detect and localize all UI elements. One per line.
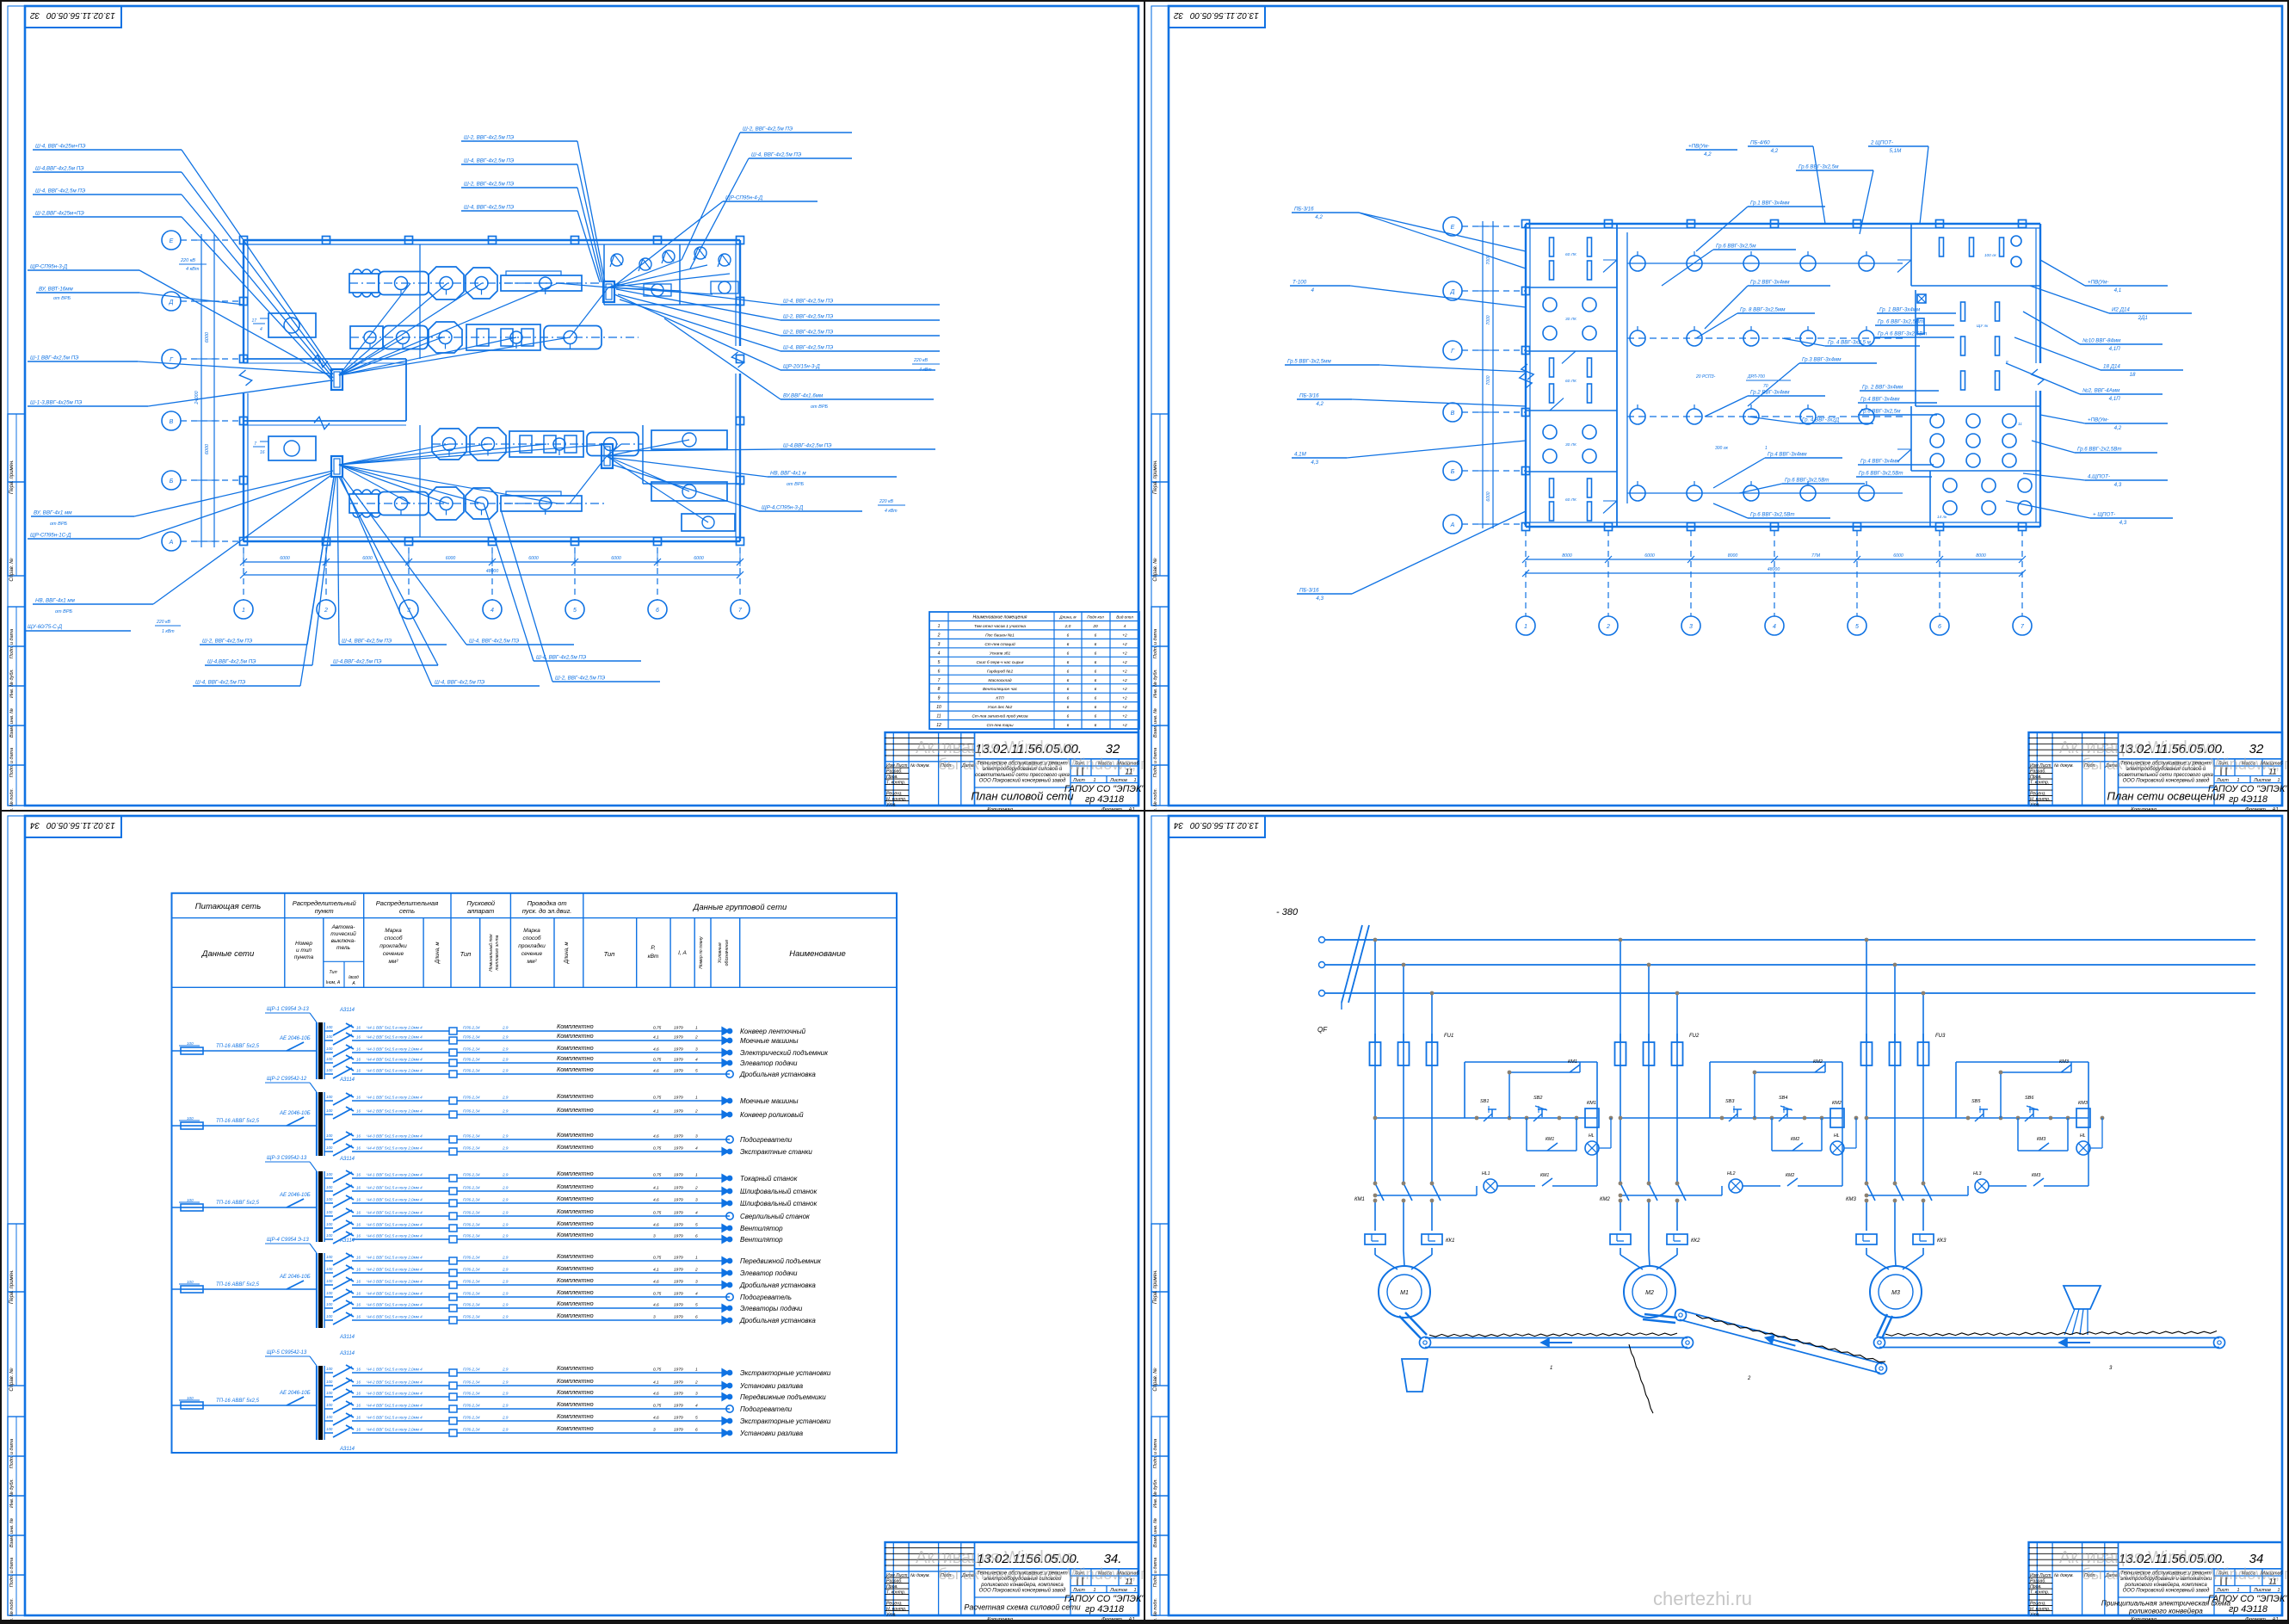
svg-text:+2: +2 <box>1122 696 1127 701</box>
svg-text:Комплектно: Комплектно <box>557 1252 594 1260</box>
svg-text:Подп. и дата: Подп. и дата <box>1153 629 1158 658</box>
svg-text:Подогреватели: Подогреватели <box>740 1136 793 1144</box>
svg-text:Гр. 6 ВВГ-3х2,5Вт: Гр. 6 ВВГ-3х2,5Вт <box>1878 319 1923 325</box>
svg-text:Подп. и дата: Подп. и дата <box>9 1558 15 1587</box>
svg-text:Тип: Тип <box>460 950 472 958</box>
svg-text:ЩУ лк: ЩУ лк <box>1977 324 1989 328</box>
svg-text:100: 100 <box>187 1396 194 1400</box>
svg-text:Подп кол: Подп кол <box>1087 615 1104 620</box>
svg-text:6: 6 <box>1938 624 1941 630</box>
svg-text:100: 100 <box>326 1185 333 1189</box>
svg-text:100: 100 <box>326 1095 333 1099</box>
svg-text:6: 6 <box>1067 660 1070 665</box>
svg-text:Дробильная установка: Дробильная установка <box>739 1281 816 1289</box>
svg-text:0,75: 0,75 <box>653 1146 662 1152</box>
svg-text:Ш-4,ВВГ-4х2,5м ПЭ: Ш-4,ВВГ-4х2,5м ПЭ <box>333 659 382 665</box>
svg-text:Номинальный ток: Номинальный ток <box>488 934 494 972</box>
svg-text:4: 4 <box>1311 287 1315 293</box>
svg-text:Н. контр.: Н. контр. <box>2030 1607 2050 1612</box>
svg-text:3: 3 <box>695 1280 698 1285</box>
svg-text:План силовой сети: План силовой сети <box>971 790 1073 803</box>
svg-text:+ПВ(Ум-: +ПВ(Ум- <box>2088 280 2108 286</box>
svg-text:Подогреватели: Подогреватели <box>740 1405 793 1413</box>
svg-text:ПЛ6-2,34: ПЛ6-2,34 <box>463 1198 480 1202</box>
svg-text:1: 1 <box>695 1256 698 1261</box>
svg-text:Гр.6 ВВГ-3х2,5м: Гр.6 ВВГ-3х2,5м <box>1798 164 1839 170</box>
svg-text:ЩР-1 С9954 Э-13: ЩР-1 С9954 Э-13 <box>267 1007 309 1012</box>
svg-text:Д: Д <box>1450 289 1455 295</box>
svg-text:Гр.2 ВВГ-3х4мм: Гр.2 ВВГ-3х4мм <box>1750 390 1790 396</box>
svg-text:220 кВ: 220 кВ <box>156 620 171 625</box>
svg-text:4,3: 4,3 <box>1311 460 1318 466</box>
svg-text:Взам. инв. №: Взам. инв. № <box>9 708 15 738</box>
svg-text:60 ЛК: 60 ЛК <box>1565 497 1577 503</box>
svg-text:ПЛ6-2,34: ПЛ6-2,34 <box>463 1173 480 1177</box>
svg-text:5: 5 <box>695 1303 698 1308</box>
svg-text:100 лк: 100 лк <box>1984 253 1997 257</box>
svg-text:Д: Д <box>169 299 174 306</box>
svg-text:1979: 1979 <box>674 1211 683 1216</box>
svg-text:220 кВ: 220 кВ <box>180 258 195 263</box>
svg-text:100: 100 <box>187 1041 194 1046</box>
svg-text:2,9: 2,9 <box>502 1368 509 1372</box>
svg-text:Пос башен №1: Пос башен №1 <box>985 633 1015 639</box>
svg-text:2: 2 <box>694 1035 698 1040</box>
svg-text:48000: 48000 <box>486 569 499 574</box>
svg-text:16: 16 <box>356 1211 361 1215</box>
svg-text:Справ. №: Справ. № <box>1152 558 1158 582</box>
svg-text:Дробильная установка: Дробильная установка <box>739 1317 816 1325</box>
svg-text:4,ЩПОТ-: 4,ЩПОТ- <box>2088 474 2110 480</box>
svg-text:бы активировать Windows, перей: бы активировать Windows, перейд <box>938 755 1144 773</box>
svg-text:2: 2 <box>1606 624 1610 630</box>
svg-text:16: 16 <box>356 1416 361 1420</box>
svg-text:Тип: Тип <box>604 950 615 958</box>
svg-text:100: 100 <box>326 1367 333 1371</box>
svg-text:АЕ 2046-10Б: АЕ 2046-10Б <box>279 1391 311 1396</box>
svg-text:100: 100 <box>326 1314 333 1318</box>
svg-text:4: 4 <box>490 608 494 614</box>
svg-text:Ч4-1 ВВГ 5х2,5 в полу 2,0мм: Ч4-1 ВВГ 5х2,5 в полу 2,0мм 4 <box>367 1173 423 1177</box>
svg-text:выключа-: выключа- <box>331 938 356 944</box>
svg-text:5: 5 <box>1855 624 1859 630</box>
svg-text:100: 100 <box>326 1222 333 1226</box>
svg-text:6: 6 <box>1095 705 1097 710</box>
svg-text:Ш-2, ВВГ-4х2,5м ПЭ: Ш-2, ВВГ-4х2,5м ПЭ <box>464 182 515 188</box>
svg-text:Взам. инв. №: Взам. инв. № <box>9 1518 15 1547</box>
svg-text:ЩУ-60/75-С-Д: ЩУ-60/75-С-Д <box>28 624 63 630</box>
svg-text:20 РСПЗ-: 20 РСПЗ- <box>1695 374 1716 380</box>
svg-text:0,75: 0,75 <box>653 1404 662 1409</box>
svg-text:КМ2: КМ2 <box>1832 1101 1842 1106</box>
svg-text:1979: 1979 <box>674 1035 683 1040</box>
svg-text:Ч4-2 ВВГ 5х2,5 в полу 2,0мм: Ч4-2 ВВГ 5х2,5 в полу 2,0мм 4 <box>367 1268 423 1272</box>
svg-text:Инв. № подл.: Инв. № подл. <box>1153 1598 1158 1620</box>
svg-text:Инв. № дубл.: Инв. № дубл. <box>1153 669 1158 698</box>
svg-text:Питающая сеть: Питающая сеть <box>195 902 261 911</box>
svg-text:4,2: 4,2 <box>2114 425 2122 431</box>
svg-text:100: 100 <box>187 1280 194 1284</box>
svg-text:Т. контр.: Т. контр. <box>886 1590 905 1596</box>
svg-text:60 ЛК: 60 ЛК <box>1565 379 1577 384</box>
svg-text:2,9: 2,9 <box>502 1211 509 1215</box>
svg-text:ГАПОУ СО "ЭПЭК": ГАПОУ СО "ЭПЭК" <box>1064 784 1144 794</box>
svg-text:ПБ-4/60: ПБ-4/60 <box>1750 140 1770 146</box>
svg-text:А: А <box>1450 522 1455 528</box>
svg-text:6: 6 <box>1067 705 1070 710</box>
svg-text:Ч4-6 ВВГ 5х2,5 в полу 2,0мм: Ч4-6 ВВГ 5х2,5 в полу 2,0мм 4 <box>367 1234 423 1238</box>
svg-text:Ш-4, ВВГ-4х2,5м ПЭ: Ш-4, ВВГ-4х2,5м ПЭ <box>464 205 515 211</box>
svg-text:Формат: Формат <box>2245 1618 2266 1621</box>
svg-text:Длина, м: Длина, м <box>435 942 441 964</box>
svg-text:гр 4Э118: гр 4Э118 <box>1085 1604 1124 1615</box>
svg-text:8000: 8000 <box>1976 553 1986 559</box>
svg-text:Номер: Номер <box>295 941 312 947</box>
svg-text:от ВРБ: от ВРБ <box>50 522 68 527</box>
svg-text:Ч4-4 ВВГ 5х2,5 в полу 2,0мм: Ч4-4 ВВГ 5х2,5 в полу 2,0мм 4 <box>367 1146 423 1151</box>
svg-text:ТП-16 АВВГ 5х2,5: ТП-16 АВВГ 5х2,5 <box>216 1201 260 1206</box>
svg-text:8: 8 <box>938 687 941 692</box>
svg-text:+2: +2 <box>1122 633 1127 639</box>
svg-text:Н. контр.: Н. контр. <box>2030 797 2050 802</box>
svg-text:Маслосклад: Маслосклад <box>988 678 1012 683</box>
svg-text:АЗ114: АЗ114 <box>339 1008 355 1013</box>
svg-text:Ш-4,ВВГ-4х2,5м ПЭ: Ш-4,ВВГ-4х2,5м ПЭ <box>783 443 832 449</box>
svg-text:ПЛ6-2,34: ПЛ6-2,34 <box>463 1223 480 1227</box>
svg-text:4 кВт: 4 кВт <box>186 267 200 272</box>
svg-text:Гр.3 ВВГ-3х4мм: Гр.3 ВВГ-3х4мм <box>1802 357 1842 363</box>
svg-text:100: 100 <box>326 1255 333 1259</box>
svg-text:КМ3: КМ3 <box>1846 1197 1857 1202</box>
svg-text:SB1: SB1 <box>1480 1099 1489 1104</box>
svg-text:1979: 1979 <box>674 1173 683 1178</box>
svg-text:16: 16 <box>356 1303 361 1307</box>
svg-text:11: 11 <box>936 714 941 719</box>
svg-text:Гр.5 ВВГ-3х2,5мм: Гр.5 ВВГ-3х2,5мм <box>1287 359 1331 365</box>
svg-text:6000: 6000 <box>1486 491 1491 501</box>
svg-text:1979: 1979 <box>674 1428 683 1433</box>
svg-text:Ч4-3 ВВГ 5х2,5 в полу 2,0мм: Ч4-3 ВВГ 5х2,5 в полу 2,0мм 4 <box>367 1392 423 1396</box>
svg-text:А: А <box>169 540 174 546</box>
svg-text:Ч4-5 ВВГ 5х2,5 в полу 2,0мм: Ч4-5 ВВГ 5х2,5 в полу 2,0мм 4 <box>367 1069 423 1073</box>
svg-text:5: 5 <box>695 1416 698 1421</box>
svg-text:ЩР-5 С99542-13: ЩР-5 С99542-13 <box>267 1350 307 1355</box>
svg-text:HL3: HL3 <box>1973 1171 1982 1176</box>
svg-text:ПЛ6-2,34: ПЛ6-2,34 <box>463 1211 480 1215</box>
svg-text:0,75: 0,75 <box>653 1211 662 1216</box>
svg-text:Экстрактные станки: Экстрактные станки <box>740 1148 812 1156</box>
svg-text:Ч4-4 ВВГ 5х2,5 в полу 2,0мм: Ч4-4 ВВГ 5х2,5 в полу 2,0мм 4 <box>367 1404 423 1408</box>
svg-text:7000: 7000 <box>1486 315 1491 324</box>
svg-text:5: 5 <box>695 1069 698 1074</box>
svg-text:Комплектно: Комплектно <box>557 1400 594 1408</box>
svg-text:1979: 1979 <box>674 1026 683 1031</box>
svg-text:1979: 1979 <box>674 1315 683 1320</box>
svg-text:Ч4-4 ВВГ 5х2,5 в полу 2,0мм: Ч4-4 ВВГ 5х2,5 в полу 2,0мм 4 <box>367 1058 423 1062</box>
svg-text:Ч4-2 ВВГ 5х2,5 в полу 2,0мм: Ч4-2 ВВГ 5х2,5 в полу 2,0мм 4 <box>367 1035 423 1040</box>
svg-text:2,9: 2,9 <box>502 1292 509 1296</box>
svg-text:М1: М1 <box>1400 1290 1409 1296</box>
svg-text:34: 34 <box>30 820 40 830</box>
svg-text:№ докум.: № докум. <box>2054 1573 2074 1578</box>
svg-text:способ: способ <box>385 935 403 942</box>
svg-text:+ПВ(Ум-: +ПВ(Ум- <box>2088 417 2108 423</box>
svg-text:ПЛ6-2,34: ПЛ6-2,34 <box>463 1134 480 1139</box>
svg-text:6: 6 <box>1095 651 1097 656</box>
svg-text:АЕ 2046-10Б: АЕ 2046-10Б <box>279 1275 311 1280</box>
svg-text:3: 3 <box>695 1134 698 1139</box>
svg-text:1979: 1979 <box>674 1268 683 1273</box>
svg-text:Данные сети: Данные сети <box>201 949 255 959</box>
svg-text:6: 6 <box>695 1315 698 1320</box>
svg-text:№ докум.: № докум. <box>910 763 930 769</box>
svg-text:100: 100 <box>326 1145 333 1150</box>
svg-text:Ш-4, ВВГ-4х2,5м ПЭ: Ш-4, ВВГ-4х2,5м ПЭ <box>435 680 485 686</box>
svg-text:Т. контр.: Т. контр. <box>2030 781 2049 786</box>
svg-text:13.02.11.56.05.00: 13.02.11.56.05.00 <box>46 10 115 20</box>
svg-text:Ш-2, ВВГ-4х2,5м ПЭ: Ш-2, ВВГ-4х2,5м ПЭ <box>743 127 793 133</box>
svg-text:мм²: мм² <box>388 959 398 965</box>
svg-text:Комплектно: Комплектно <box>557 1412 594 1420</box>
svg-text:ГАПОУ СО "ЭПЭК": ГАПОУ СО "ЭПЭК" <box>2208 1594 2287 1604</box>
svg-text:Н. контр.: Н. контр. <box>886 797 906 802</box>
svg-text:Ч4-2 ВВГ 5х2,5 в полу 2,0мм: Ч4-2 ВВГ 5х2,5 в полу 2,0мм 4 <box>367 1109 423 1114</box>
svg-text:Конвеер ленточный: Конвеер ленточный <box>740 1028 806 1035</box>
svg-text:FU3: FU3 <box>1935 1034 1946 1039</box>
svg-text:ПЛ6-2,34: ПЛ6-2,34 <box>463 1058 480 1062</box>
svg-text:ПЛ6-2,34: ПЛ6-2,34 <box>463 1303 480 1307</box>
svg-text:Подогреватель: Подогреватель <box>740 1294 792 1301</box>
svg-text:Перв. примен.: Перв. примен. <box>9 1269 15 1304</box>
svg-text:Моечные машины: Моечные машины <box>740 1037 799 1045</box>
svg-text:6: 6 <box>1067 723 1070 728</box>
svg-text:34: 34 <box>1174 820 1184 830</box>
svg-text:Комплектно: Комплектно <box>557 1288 594 1296</box>
svg-text:сеть: сеть <box>399 907 415 915</box>
svg-text:4,6: 4,6 <box>653 1280 659 1285</box>
svg-text:3: 3 <box>2109 1366 2113 1371</box>
svg-text:6: 6 <box>1095 678 1097 683</box>
svg-text:1: 1 <box>695 1368 698 1373</box>
svg-text:4: 4 <box>1773 624 1776 630</box>
svg-text:ПЛ6-2,34: ПЛ6-2,34 <box>463 1315 480 1319</box>
svg-text:16: 16 <box>356 1315 361 1319</box>
svg-text:Скип б перв-ч нас сырья: Скип б перв-ч нас сырья <box>976 660 1023 665</box>
svg-text:6: 6 <box>1067 714 1070 719</box>
svg-text:ГАПОУ СО "ЭПЭК": ГАПОУ СО "ЭПЭК" <box>1064 1594 1144 1604</box>
svg-text:Длина, м: Длина, м <box>565 942 570 964</box>
svg-text:I, А: I, А <box>678 950 687 956</box>
svg-text:Инв. № подл.: Инв. № подл. <box>9 1598 15 1620</box>
svg-text:11: 11 <box>2018 422 2022 427</box>
svg-text:Изм Лист: Изм Лист <box>886 763 908 769</box>
svg-text:1979: 1979 <box>674 1234 683 1239</box>
svg-text:Инв. № дубл.: Инв. № дубл. <box>1153 1479 1158 1508</box>
svg-text:100: 100 <box>326 1197 333 1201</box>
svg-text:Тем откл часов 1 участка: Тем откл часов 1 участка <box>974 624 1026 629</box>
svg-text:Ч4-3 ВВГ 5х2,5 в полу 2,0мм: Ч4-3 ВВГ 5х2,5 в полу 2,0мм 4 <box>367 1047 423 1052</box>
svg-text:SB2: SB2 <box>1533 1096 1542 1101</box>
svg-text:Гр.6 ВВГ-3х2,5м: Гр.6 ВВГ-3х2,5м <box>1716 244 1756 250</box>
svg-text:0,75: 0,75 <box>653 1096 662 1101</box>
svg-text:+2: +2 <box>1122 669 1127 674</box>
svg-text:Экстракторные установки: Экстракторные установки <box>740 1417 831 1425</box>
svg-text:АЗ114: АЗ114 <box>339 1335 355 1340</box>
svg-text:100: 100 <box>326 1133 333 1138</box>
svg-text:ПЛ6-2,34: ПЛ6-2,34 <box>463 1368 480 1372</box>
svg-text:Комплектно: Комплектно <box>557 1207 594 1215</box>
svg-text:100: 100 <box>326 1108 333 1113</box>
svg-text:АЕ 2046-10Б: АЕ 2046-10Б <box>279 1111 311 1116</box>
svg-text:Реценз.: Реценз. <box>2030 1602 2046 1607</box>
svg-text:Подп. и дата: Подп. и дата <box>9 1439 15 1468</box>
svg-text:Гр.1 ВВГ-3х4мм: Гр.1 ВВГ-3х4мм <box>1750 201 1790 207</box>
svg-text:от ВРБ: от ВРБ <box>53 296 71 301</box>
svg-text:Комплектно: Комплектно <box>557 1377 594 1385</box>
svg-text:4,6: 4,6 <box>653 1069 659 1074</box>
svg-text:мм²: мм² <box>527 959 537 965</box>
svg-text:6: 6 <box>1067 651 1070 656</box>
svg-text:1979: 1979 <box>674 1368 683 1373</box>
svg-text:77М: 77М <box>1811 553 1821 559</box>
svg-text:Ш-4, ВВГ-4х2,5м ПЭ: Ш-4, ВВГ-4х2,5м ПЭ <box>35 188 86 195</box>
svg-text:Комплектно: Комплектно <box>557 1388 594 1396</box>
svg-text:Наименование помещения: Наименование помещения <box>973 615 1027 621</box>
svg-text:6000: 6000 <box>280 556 290 561</box>
svg-text:Утв.: Утв. <box>886 1613 897 1618</box>
svg-text:4: 4 <box>938 651 941 656</box>
svg-text:+2: +2 <box>1122 660 1127 665</box>
svg-text:4,2: 4,2 <box>1315 214 1323 220</box>
svg-text:6: 6 <box>1095 633 1097 639</box>
svg-text:220 кВ: 220 кВ <box>879 499 894 504</box>
svg-text:Ш-4, ВВГ-4х2,5м ПЭ: Ш-4, ВВГ-4х2,5м ПЭ <box>195 680 246 686</box>
svg-text:Т. контр.: Т. контр. <box>886 781 905 786</box>
svg-text:Гр.2 ВВГ-3х4мм: Гр.2 ВВГ-3х4мм <box>1750 280 1790 286</box>
svg-text:Ш-4, ВВГ-4х2,5м ПЭ: Ш-4, ВВГ-4х2,5м ПЭ <box>464 158 515 164</box>
svg-text:ПЛ6-2,34: ПЛ6-2,34 <box>463 1392 480 1396</box>
svg-text:2Д1: 2Д1 <box>2138 315 2148 321</box>
svg-text:70: 70 <box>1763 384 1768 389</box>
svg-text:16: 16 <box>356 1368 361 1372</box>
svg-text:пункт: пункт <box>315 907 334 915</box>
svg-text:1979: 1979 <box>674 1096 683 1101</box>
svg-text:КМ1: КМ1 <box>1540 1173 1549 1178</box>
svg-text:18 Д14: 18 Д14 <box>2103 364 2120 370</box>
svg-text:Утв.: Утв. <box>886 803 897 808</box>
svg-text:Гр.4 ВВГ-3х4мм: Гр.4 ВВГ-3х4мм <box>1768 452 1807 458</box>
svg-text:Условные: Условные <box>718 942 723 963</box>
svg-text:6: 6 <box>1095 714 1097 719</box>
svg-text:Формат: Формат <box>1101 1618 1122 1621</box>
svg-text:6: 6 <box>1067 696 1070 701</box>
svg-text:1979: 1979 <box>674 1392 683 1397</box>
svg-text:220 кВ: 220 кВ <box>913 358 929 363</box>
svg-text:2,9: 2,9 <box>502 1268 509 1272</box>
svg-text:КМ1: КМ1 <box>1546 1137 1554 1142</box>
svg-text:2,9: 2,9 <box>502 1428 509 1432</box>
svg-text:АЗ114: АЗ114 <box>339 1157 355 1162</box>
svg-text:FU1: FU1 <box>1444 1034 1453 1039</box>
svg-text:20: 20 <box>1092 624 1098 629</box>
svg-text:+ПВ(Ум-: +ПВ(Ум- <box>1688 144 1709 150</box>
svg-text:chertezhi.ru: chertezhi.ru <box>1653 1588 1752 1609</box>
svg-text:КТП: КТП <box>996 696 1004 701</box>
svg-text:Подп. и дата: Подп. и дата <box>1153 748 1158 777</box>
svg-text:Гр. 1 ВВГ-3х4мм: Гр. 1 ВВГ-3х4мм <box>1879 307 1921 313</box>
svg-text:2,9: 2,9 <box>502 1380 509 1385</box>
svg-text:ООО Покровский консервный заво: ООО Покровский консервный завод <box>2123 1588 2210 1594</box>
svg-text:Ч4-3 ВВГ 5х2,5 в полу 2,0мм: Ч4-3 ВВГ 5х2,5 в полу 2,0мм 4 <box>367 1280 423 1284</box>
svg-text:5,1М: 5,1М <box>1890 148 1903 154</box>
svg-text:Ш-4,ВВГ-4х2,5м ПЭ: Ш-4,ВВГ-4х2,5м ПЭ <box>207 659 256 665</box>
svg-text:Ч4-1 ВВГ 5х2,5 в полу 2,0мм: Ч4-1 ВВГ 5х2,5 в полу 2,0мм 4 <box>367 1026 423 1030</box>
svg-text:Шлифовальный станок: Шлифовальный станок <box>740 1188 817 1195</box>
svg-text:Ш-4, ВВГ-4х25м+ПЭ: Ш-4, ВВГ-4х25м+ПЭ <box>35 144 86 150</box>
svg-text:ПЛ6-2,34: ПЛ6-2,34 <box>463 1416 480 1420</box>
svg-text:ПЛ6-2,34: ПЛ6-2,34 <box>463 1035 480 1040</box>
svg-text:2,9: 2,9 <box>502 1280 509 1284</box>
svg-text:8000: 8000 <box>1562 553 1572 559</box>
svg-text:100: 100 <box>326 1057 333 1061</box>
svg-text:Дробильная установка: Дробильная установка <box>739 1071 816 1078</box>
svg-text:4,6: 4,6 <box>653 1416 659 1421</box>
svg-text:4,1П: 4,1П <box>2109 346 2121 352</box>
svg-text:2,9: 2,9 <box>502 1109 509 1114</box>
svg-text:Комплектно: Комплектно <box>557 1170 594 1177</box>
svg-text:16: 16 <box>356 1146 361 1151</box>
svg-text:1: 1 <box>695 1026 698 1031</box>
svg-text:48000: 48000 <box>1768 567 1780 572</box>
svg-text:1979: 1979 <box>674 1280 683 1285</box>
svg-text:4 кВт: 4 кВт <box>885 509 898 514</box>
svg-text:гр 4Э118: гр 4Э118 <box>2229 794 2267 805</box>
svg-text:QF: QF <box>1317 1026 1328 1034</box>
svg-text:+2: +2 <box>1122 714 1127 719</box>
svg-text:12: 12 <box>936 723 941 728</box>
svg-text:ДРЛ-700: ДРЛ-700 <box>1747 374 1765 380</box>
svg-text:ГАПОУ СО "ЭПЭК": ГАПОУ СО "ЭПЭК" <box>2208 784 2287 794</box>
svg-text:роликового конвейера: роликового конвейера <box>2128 1608 2203 1615</box>
svg-text:Гр.6 ВВГ-2х2,5Вт: Гр.6 ВВГ-2х2,5Вт <box>2077 447 2122 453</box>
svg-text:Ш-4, ВВГ-4х2,5м ПЭ: Ш-4, ВВГ-4х2,5м ПЭ <box>783 345 834 351</box>
svg-text:Iном, А: Iном, А <box>326 980 341 985</box>
svg-text:№10 ВВГ-84мм: №10 ВВГ-84мм <box>2082 338 2121 344</box>
svg-text:и тип: и тип <box>296 948 312 954</box>
svg-text:КМ3: КМ3 <box>2059 1059 2070 1065</box>
svg-text:Реценз.: Реценз. <box>2030 792 2046 797</box>
svg-text:0,75: 0,75 <box>653 1368 662 1373</box>
svg-text:16: 16 <box>356 1392 361 1396</box>
svg-text:ПЛ6-2,34: ПЛ6-2,34 <box>463 1292 480 1296</box>
svg-text:18: 18 <box>2130 372 2136 378</box>
svg-text:4,6: 4,6 <box>653 1223 659 1228</box>
svg-text:Ст-пев стаций: Ст-пев стаций <box>984 641 1015 647</box>
svg-text:4: 4 <box>695 1146 698 1152</box>
svg-text:Токарный станок: Токарный станок <box>740 1175 799 1182</box>
svg-text:Г: Г <box>170 357 174 363</box>
svg-text:ЩР-СП95н-4-Д: ЩР-СП95н-4-Д <box>725 195 763 201</box>
svg-text:4: 4 <box>260 327 262 332</box>
svg-text:КМ2: КМ2 <box>1600 1197 1611 1202</box>
svg-text:Разраб.: Разраб. <box>2030 769 2046 775</box>
svg-text:Гр.А 6 ВВГ-3х2,5Вт: Гр.А 6 ВВГ-3х2,5Вт <box>1878 331 1927 337</box>
svg-text:Номер по плану: Номер по плану <box>699 936 704 969</box>
svg-text:4: 4 <box>695 1058 698 1063</box>
svg-text:6: 6 <box>1095 669 1097 674</box>
svg-text:16: 16 <box>356 1026 361 1030</box>
svg-text:10: 10 <box>936 705 941 710</box>
